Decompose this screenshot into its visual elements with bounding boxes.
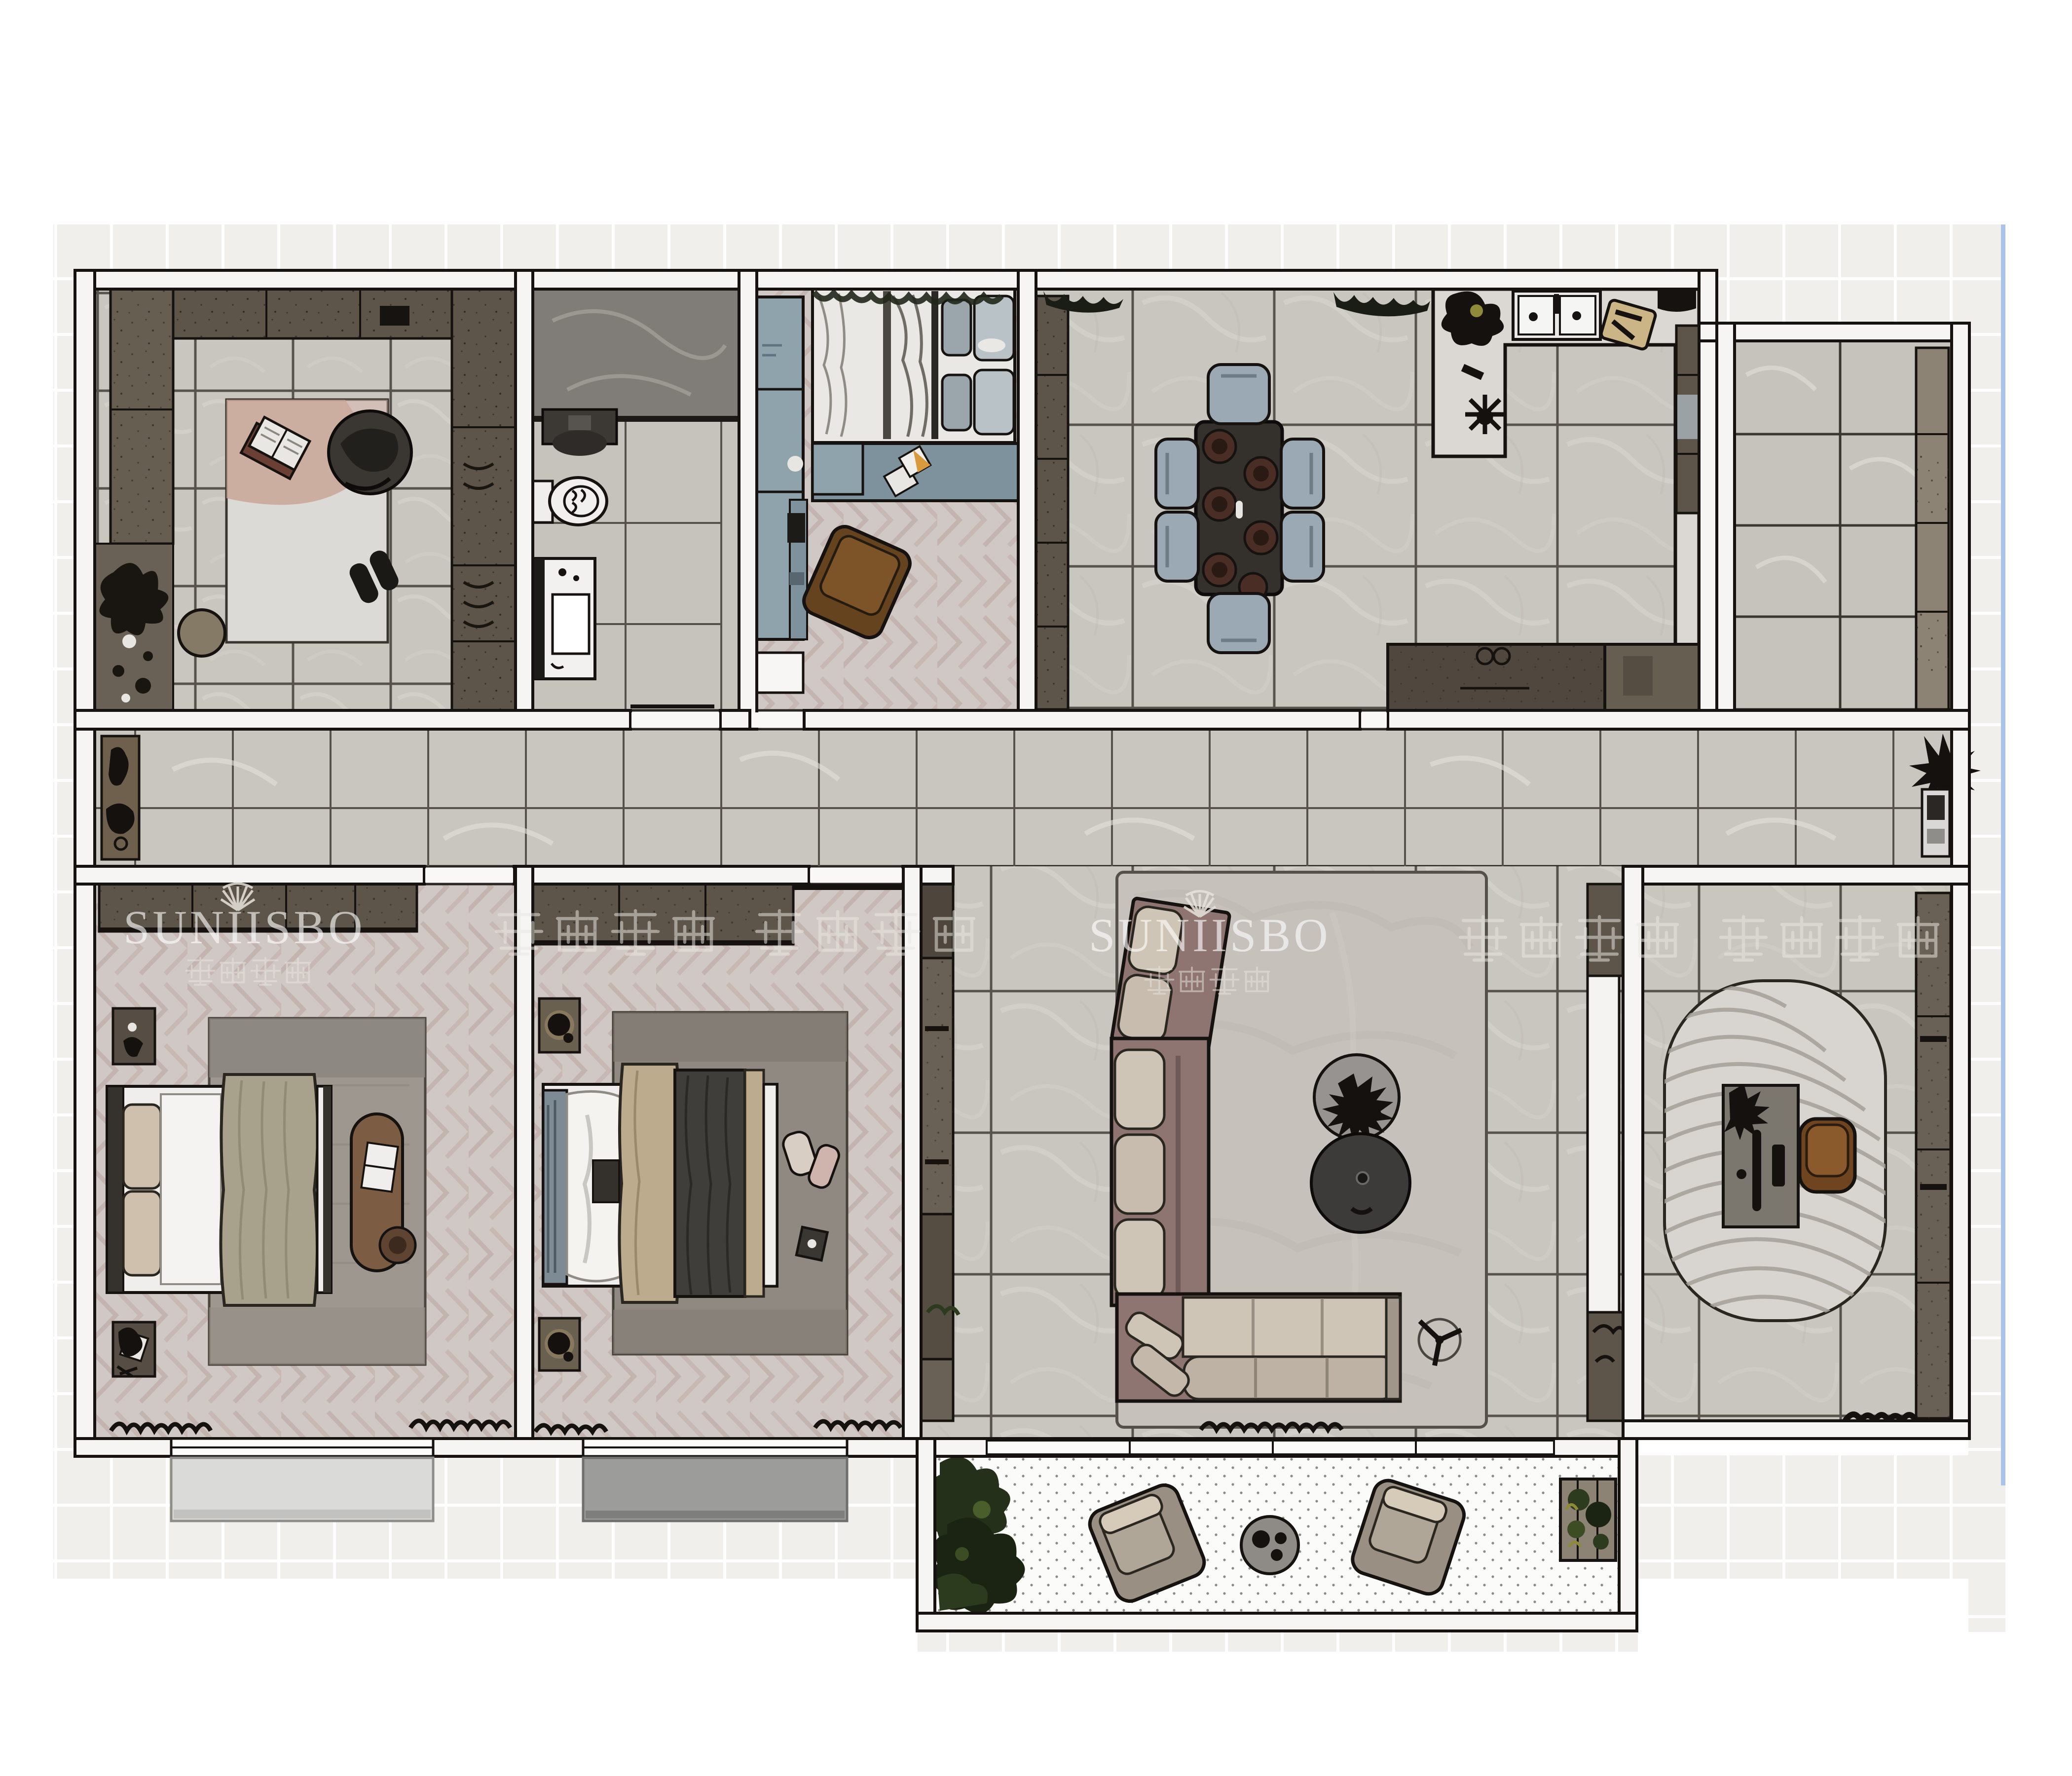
svg-text:SUNIISBO: SUNIISBO	[1089, 909, 1331, 962]
svg-text:SUNIISBO: SUNIISBO	[123, 901, 366, 954]
